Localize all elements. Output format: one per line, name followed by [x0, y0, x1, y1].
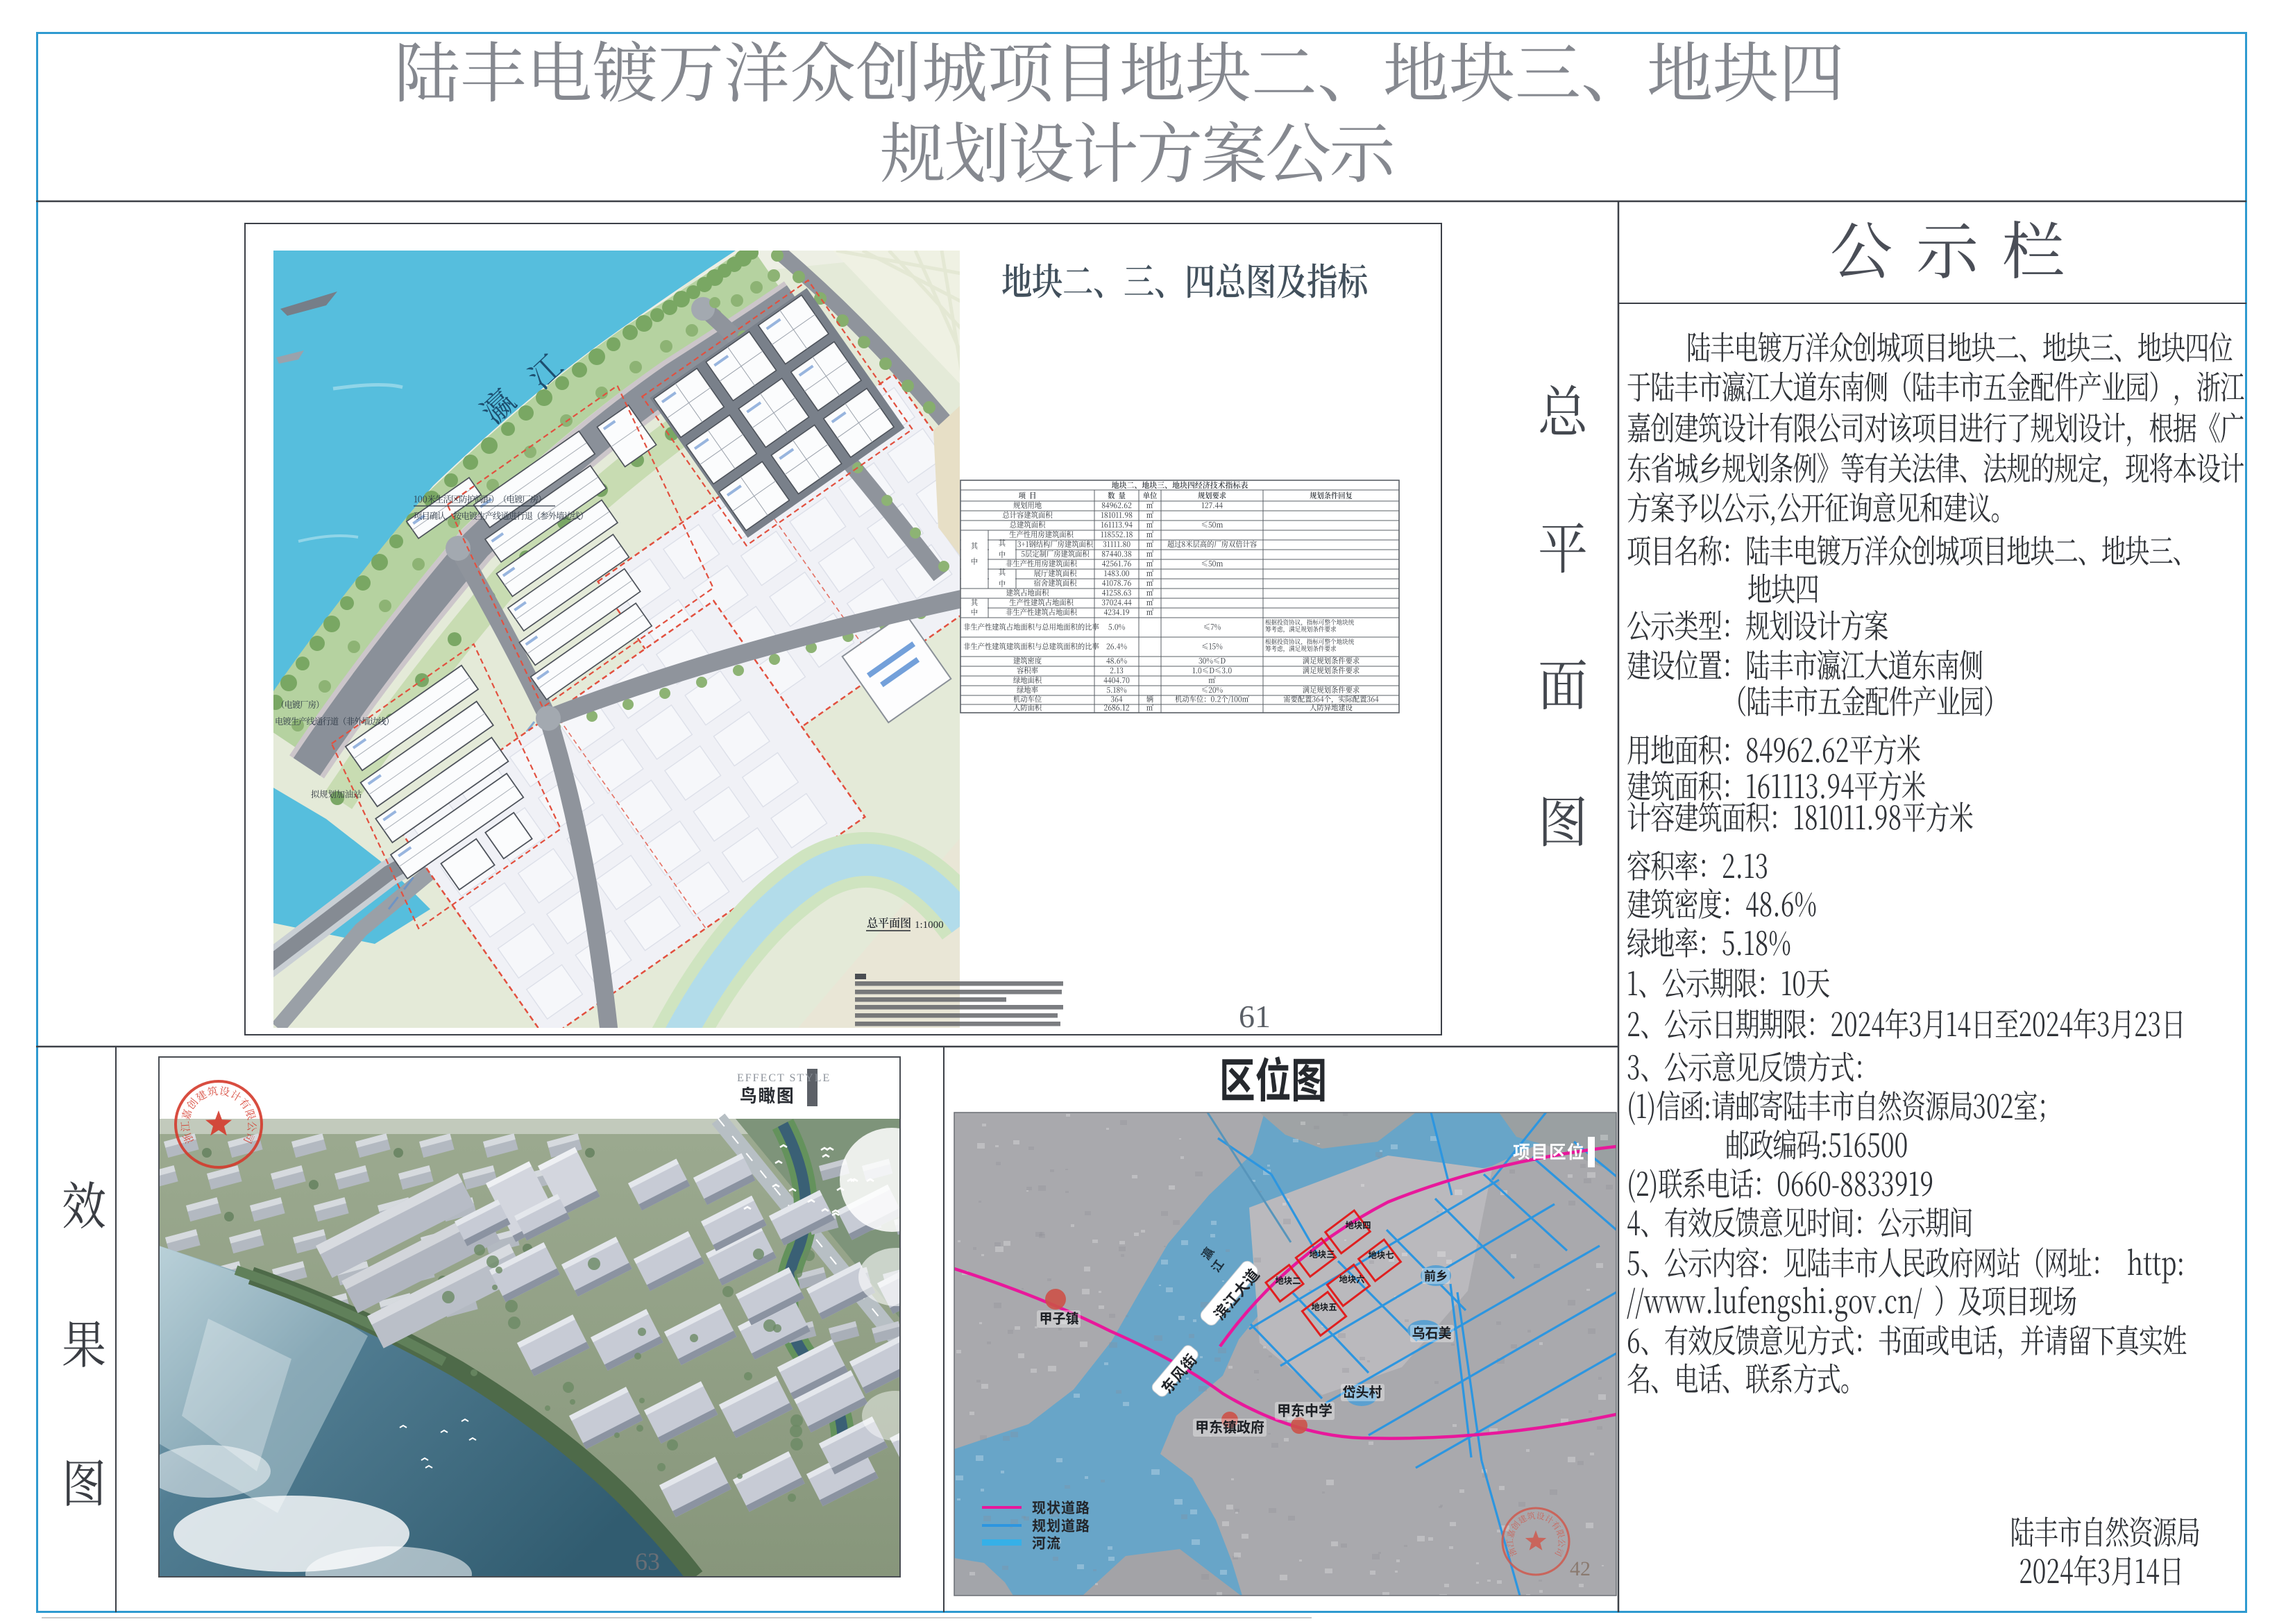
- svg-text:1:1000: 1:1000: [915, 920, 944, 931]
- svg-text:EFFECT STYLE: EFFECT STYLE: [737, 1072, 831, 1084]
- svg-text:63: 63: [635, 1548, 660, 1575]
- svg-text:61: 61: [1239, 999, 1271, 1034]
- svg-text:42: 42: [1570, 1557, 1591, 1580]
